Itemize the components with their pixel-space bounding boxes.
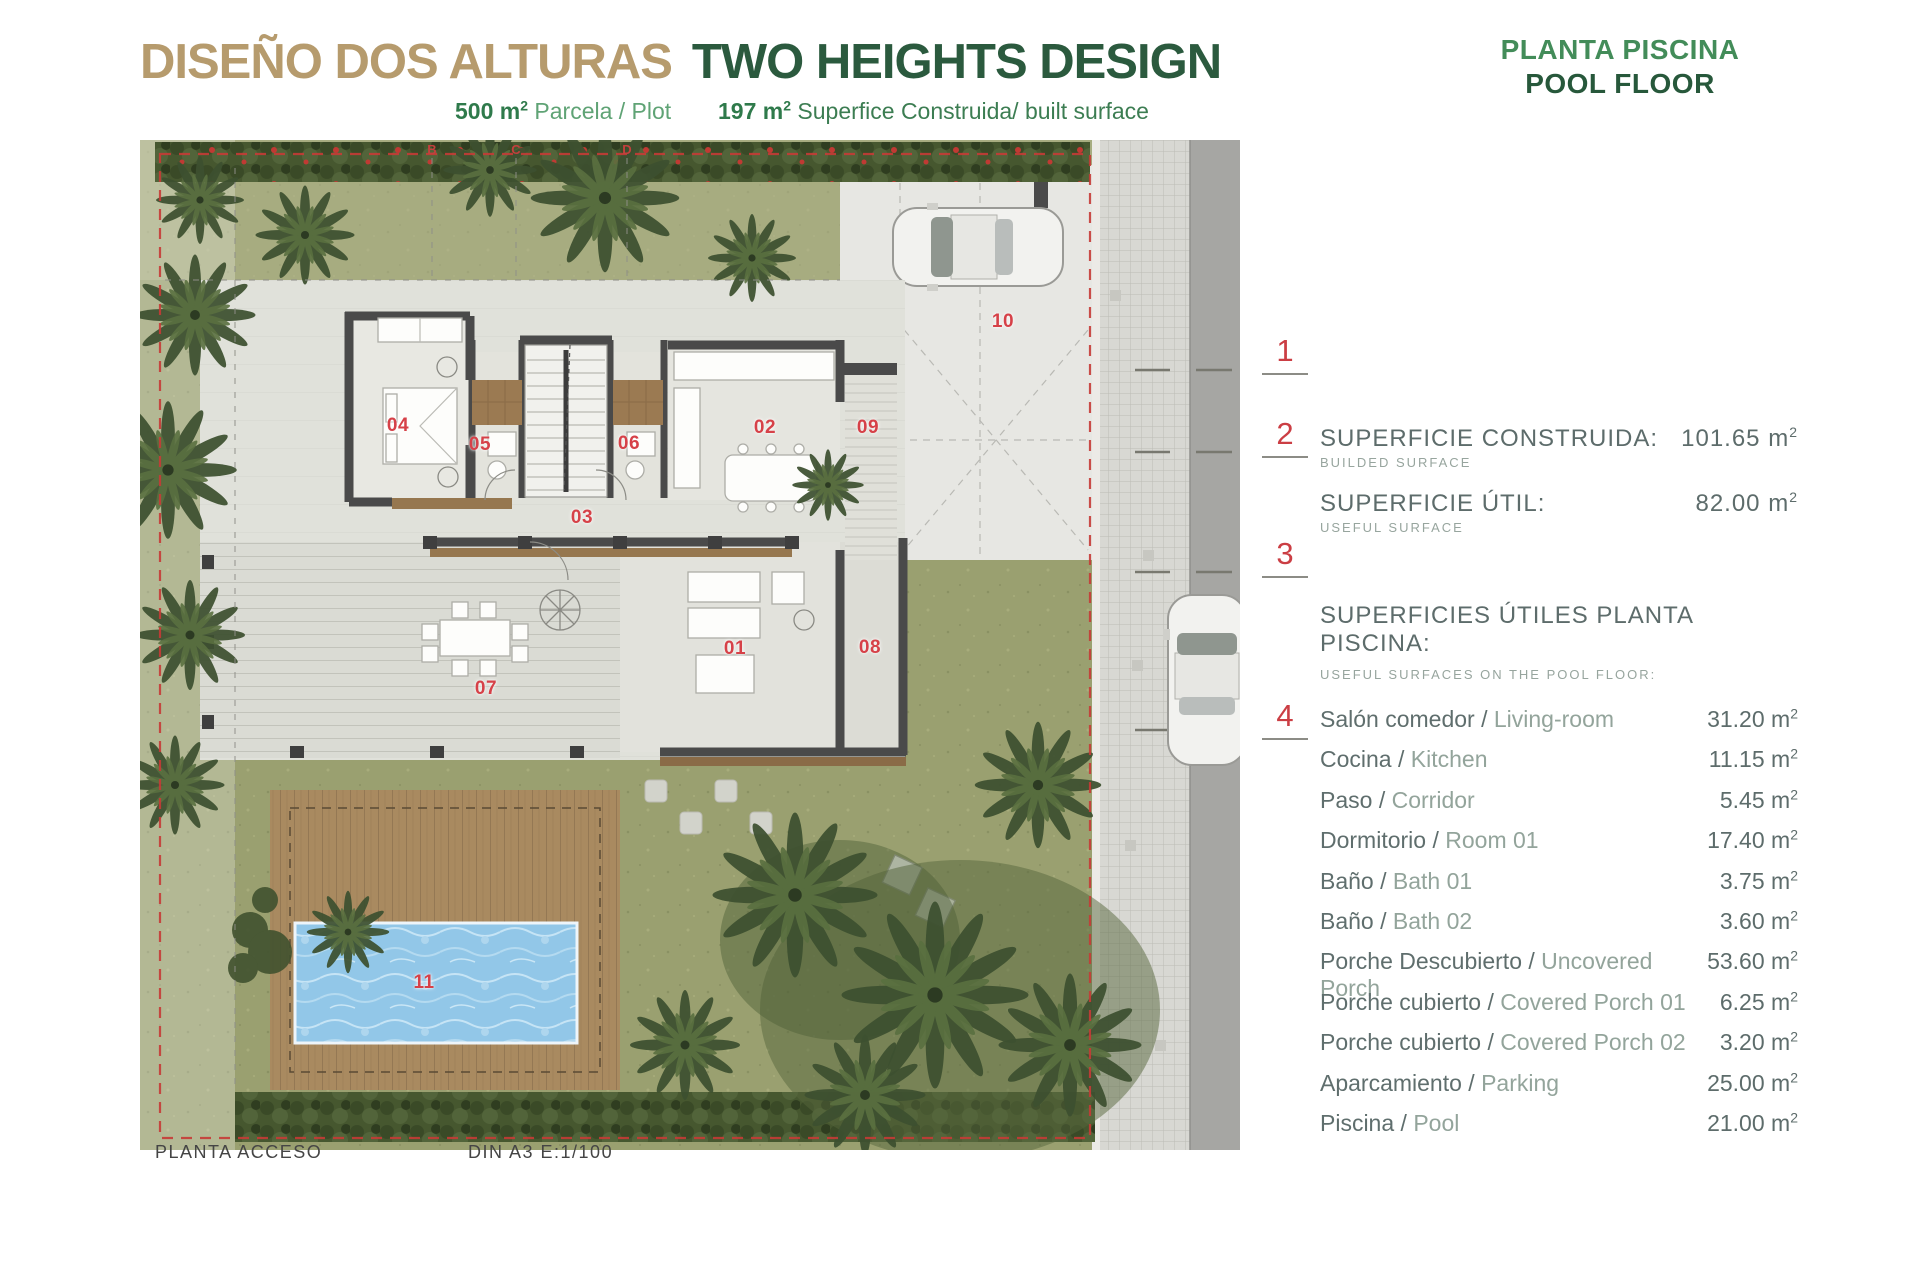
floor-plan: 01 02 03 04 05 06 07 08 09 10 11 B C D (140, 140, 1240, 1150)
surface-item-value: 6.25 m2 (1720, 989, 1798, 1016)
room-number-label: 01 (724, 638, 746, 660)
detail-marker: 2 (1262, 418, 1308, 458)
surface-item-row: Porche cubierto / Covered Porch 01 6.25 … (1320, 989, 1798, 1029)
surface-item-row: Dormitorio / Room 01 17.40 m2 (1320, 827, 1798, 867)
surface-item-row: Porche Descubierto / Uncovered Porch 53.… (1320, 948, 1798, 988)
surface-item-label: Salón comedor / Living-room (1320, 706, 1614, 733)
room-number-label: 06 (618, 433, 640, 455)
surface-item-row: Aparcamiento / Parking 25.00 m2 (1320, 1070, 1798, 1110)
surface-item-label: Dormitorio / Room 01 (1320, 827, 1539, 854)
marker-underline (1262, 738, 1308, 740)
surface-item-label: Cocina / Kitchen (1320, 746, 1487, 773)
terrace-decking (200, 542, 620, 758)
grid-letter: D (622, 142, 631, 157)
floor-name-spanish: PLANTA PISCINA (1480, 33, 1760, 67)
detail-marker: 4 (1262, 700, 1308, 740)
surface-item-value: 21.00 m2 (1707, 1110, 1798, 1137)
marker-underline (1262, 373, 1308, 375)
surface-item-value: 17.40 m2 (1707, 827, 1798, 854)
room-number-label: 08 (859, 637, 881, 659)
surface-item-label: Paso / Corridor (1320, 787, 1475, 814)
surface-item-value: 5.45 m2 (1720, 787, 1798, 814)
total-sublabel: USEFUL SURFACE (1320, 520, 1798, 535)
surface-item-value: 3.60 m2 (1720, 908, 1798, 935)
total-label: SUPERFICIE ÚTIL: (1320, 490, 1545, 518)
street-car (1163, 595, 1240, 765)
surface-item-row: Piscina / Pool 21.00 m2 (1320, 1110, 1798, 1150)
built-size: 197 m (718, 98, 783, 124)
staircase (525, 345, 607, 497)
plot-subtitle: 500 m2 Parcela / Plot 197 m2 Superfice C… (455, 98, 1149, 125)
grid-letter: B (427, 142, 436, 157)
surface-item-row: Paso / Corridor 5.45 m2 (1320, 787, 1798, 827)
surface-item-label: Aparcamiento / Parking (1320, 1070, 1559, 1097)
surface-item-value: 53.60 m2 (1707, 948, 1798, 975)
surface-item-label: Porche cubierto / Covered Porch 02 (1320, 1029, 1686, 1056)
total-label: SUPERFICIE CONSTRUIDA: (1320, 425, 1658, 453)
plot-size: 500 m (455, 98, 520, 124)
parked-car (893, 203, 1063, 291)
floor-plan-svg (140, 140, 1240, 1150)
surface-item-row: Baño / Bath 02 3.60 m2 (1320, 908, 1798, 948)
surface-item-value: 3.20 m2 (1720, 1029, 1798, 1056)
room-number-label: 03 (571, 507, 593, 529)
detail-marker: 3 (1262, 538, 1308, 578)
title-spanish: DISEÑO DOS ALTURAS (140, 35, 672, 89)
plot-label: Parcela / Plot (534, 98, 671, 124)
surface-item-row: Salón comedor / Living-room 31.20 m2 (1320, 706, 1798, 746)
surface-item-label: Baño / Bath 01 (1320, 868, 1472, 895)
room-number-label: 07 (475, 678, 497, 700)
surface-item-value: 25.00 m2 (1707, 1070, 1798, 1097)
room-number-label: 02 (754, 417, 776, 439)
room-number-label: 10 (992, 311, 1014, 333)
surface-item-row: Baño / Bath 01 3.75 m2 (1320, 868, 1798, 908)
marker-underline (1262, 576, 1308, 578)
room-number-label: 05 (469, 434, 491, 456)
floor-name-block: PLANTA PISCINA POOL FLOOR (1480, 33, 1760, 100)
room-number-label: 04 (387, 415, 409, 437)
section-subtitle: USEFUL SURFACES ON THE POOL FLOOR: (1320, 667, 1798, 682)
surface-item-row: Porche cubierto / Covered Porch 02 3.20 … (1320, 1029, 1798, 1069)
plan-footer-scale: DIN A3 E:1/100 (468, 1142, 613, 1163)
grid-letter: C (511, 142, 520, 157)
page-title: DISEÑO DOS ALTURASTWO HEIGHTS DESIGN (140, 34, 1221, 90)
built-label: Superfice Construida/ built surface (797, 98, 1149, 124)
surface-summary: SUPERFICIE CONSTRUIDA: 101.65 m2 BUILDED… (1320, 425, 1798, 555)
section-head: SUPERFICIES ÚTILES PLANTA PISCINA: USEFU… (1320, 602, 1798, 682)
total-row: SUPERFICIE CONSTRUIDA: 101.65 m2 BUILDED… (1320, 425, 1798, 470)
surface-items-list: Salón comedor / Living-room 31.20 m2 Coc… (1320, 706, 1798, 1150)
detail-marker: 1 (1262, 335, 1308, 375)
surface-item-label: Baño / Bath 02 (1320, 908, 1472, 935)
surface-item-label: Piscina / Pool (1320, 1110, 1459, 1137)
plan-footer-name: PLANTA ACCESO (155, 1142, 322, 1163)
floor-name-english: POOL FLOOR (1480, 67, 1760, 101)
surface-item-value: 31.20 m2 (1707, 706, 1798, 733)
title-english: TWO HEIGHTS DESIGN (692, 35, 1221, 89)
section-title: SUPERFICIES ÚTILES PLANTA PISCINA: (1320, 602, 1798, 658)
total-value: 101.65 m2 (1681, 425, 1798, 453)
surface-item-value: 3.75 m2 (1720, 868, 1798, 895)
porch-09 (845, 375, 897, 560)
surface-item-value: 11.15 m2 (1709, 746, 1798, 773)
total-value: 82.00 m2 (1695, 490, 1798, 518)
room-number-label: 09 (857, 417, 879, 439)
room-number-label: 11 (413, 972, 434, 994)
marker-underline (1262, 456, 1308, 458)
surface-item-row: Cocina / Kitchen 11.15 m2 (1320, 746, 1798, 786)
total-sublabel: BUILDED SURFACE (1320, 455, 1798, 470)
surface-item-label: Porche cubierto / Covered Porch 01 (1320, 989, 1686, 1016)
total-row: SUPERFICIE ÚTIL: 82.00 m2 USEFUL SURFACE (1320, 490, 1798, 535)
